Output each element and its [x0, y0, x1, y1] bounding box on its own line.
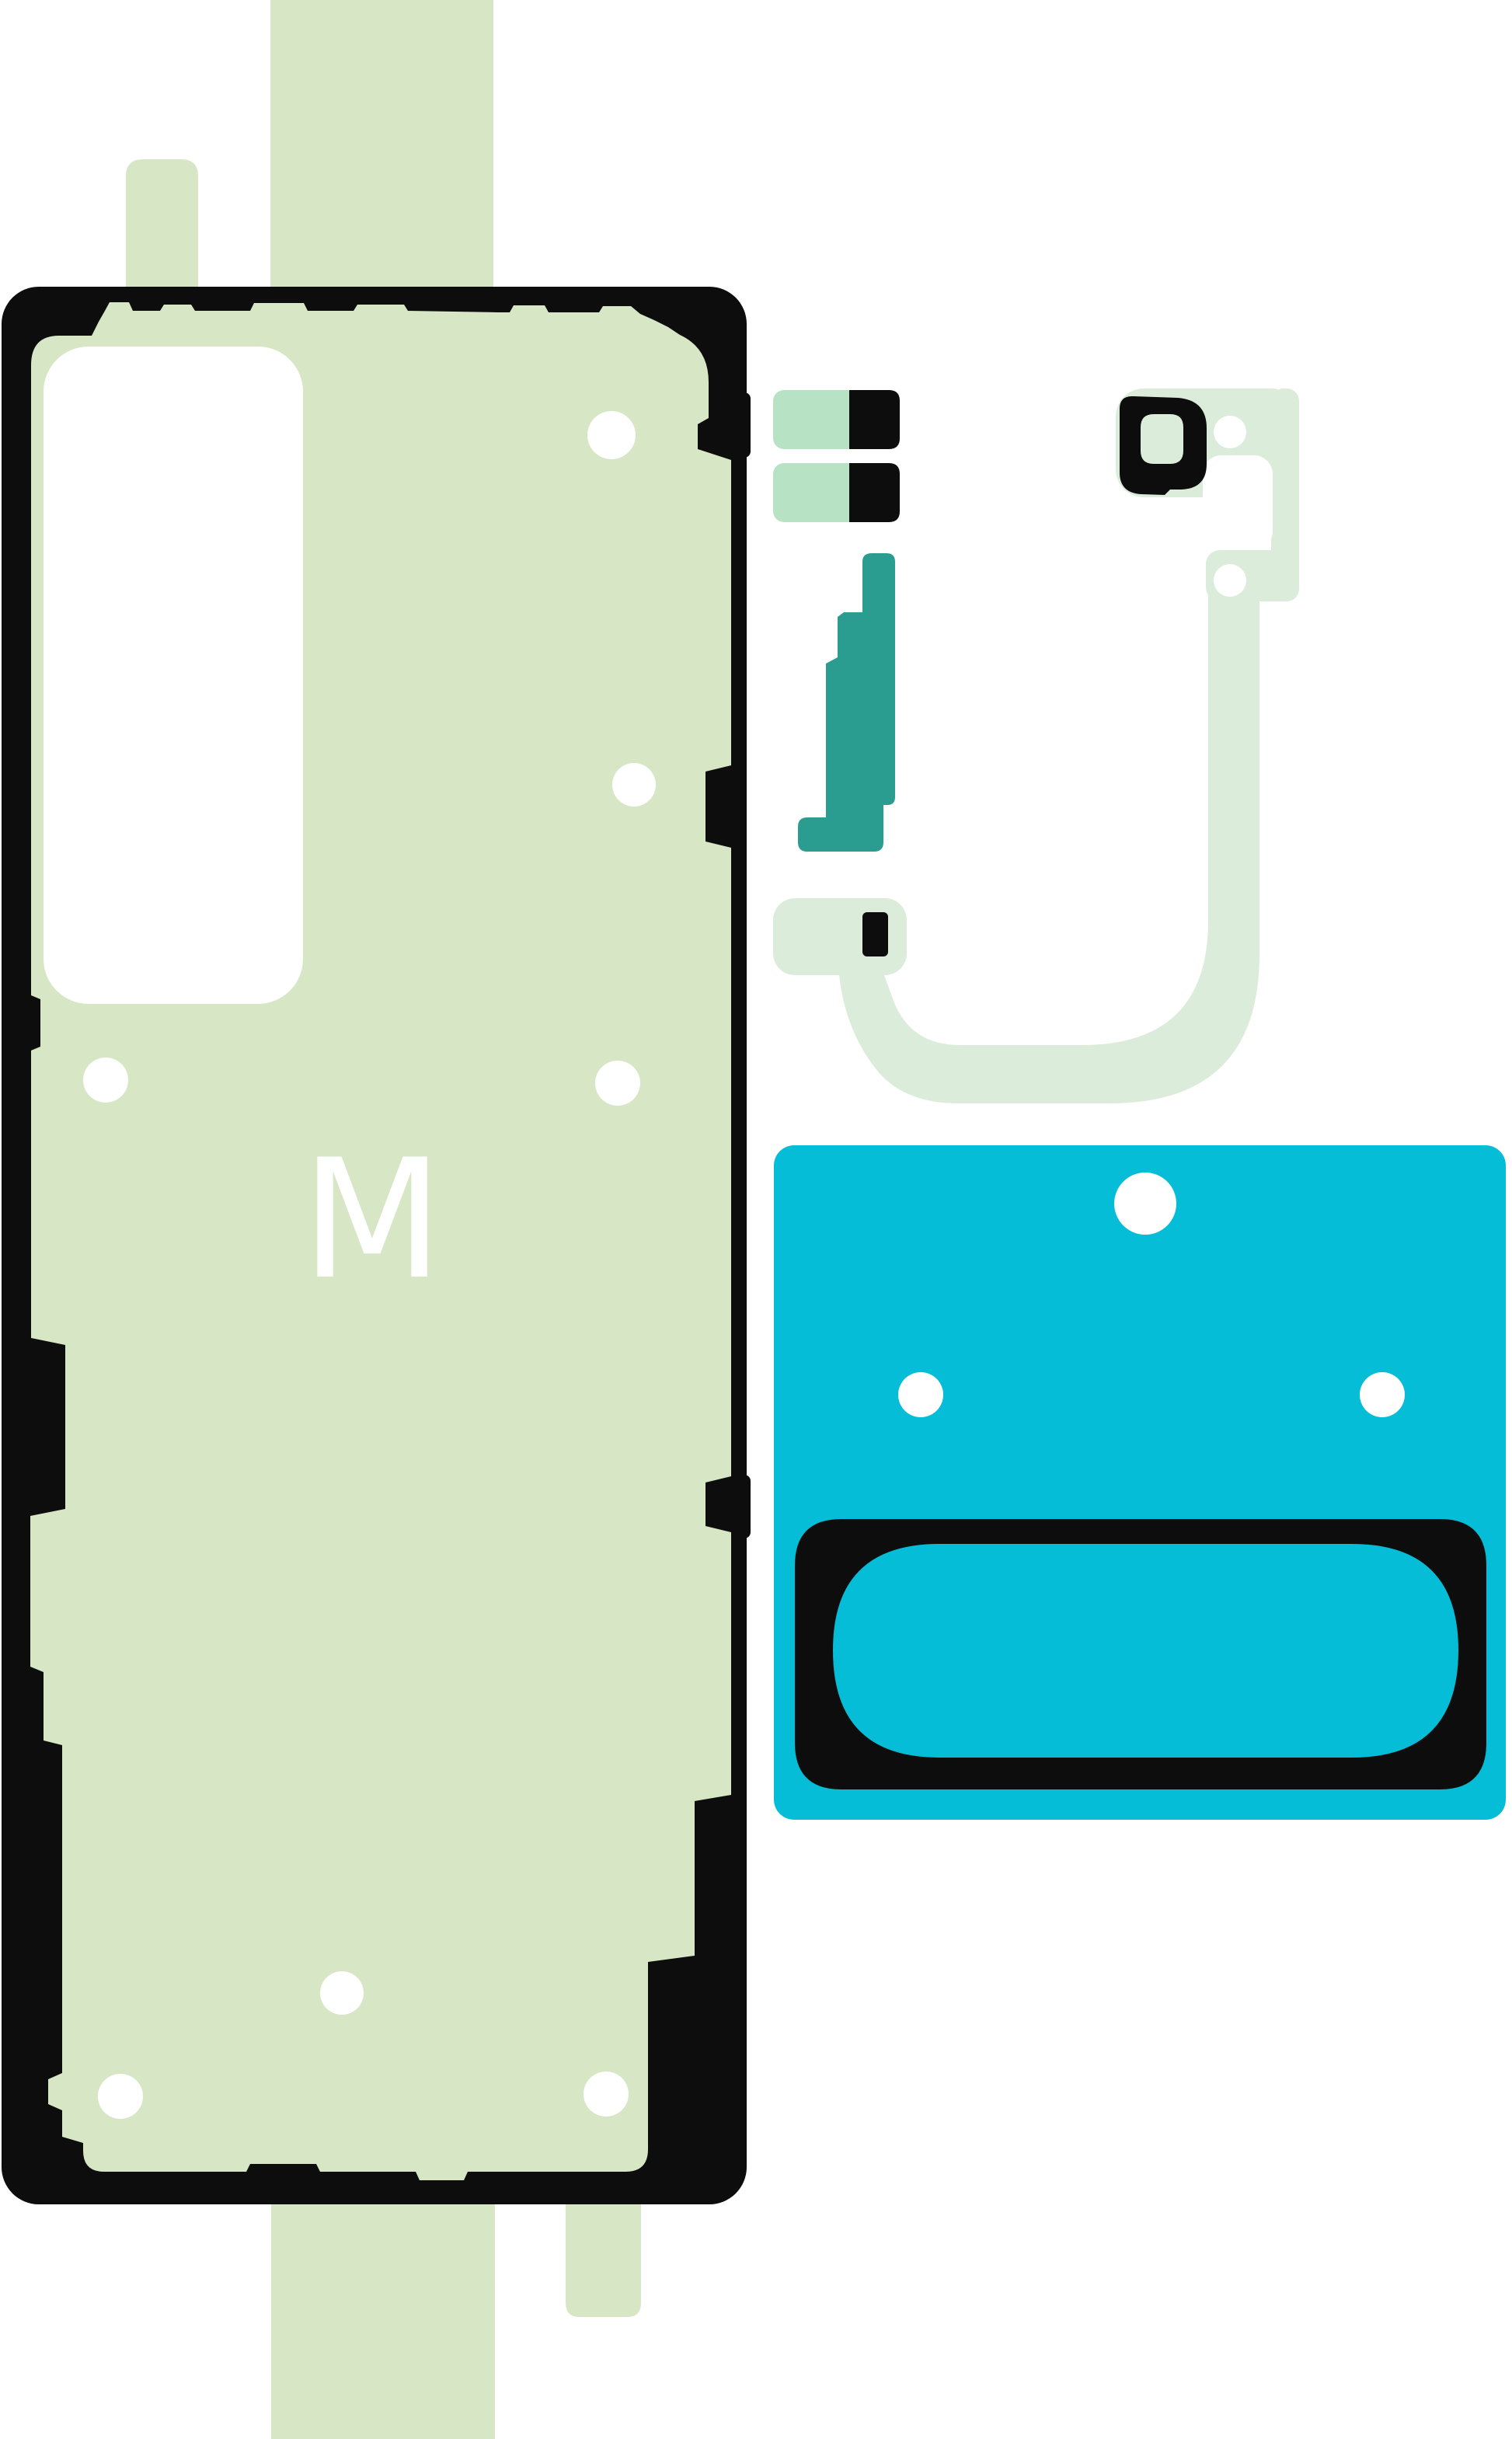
- camera-plate-adhesive: [774, 1145, 1506, 1820]
- alignment-hole: [98, 2074, 143, 2119]
- alignment-hole: [584, 2071, 629, 2117]
- liner-tab-bottom: [566, 2199, 641, 2317]
- sensor-strip-2-ink-end: [849, 463, 900, 522]
- sensor-strip-1-ink-end: [849, 390, 900, 449]
- camera-plate-face: [774, 1145, 1506, 1820]
- plate-hole-left: [898, 1372, 943, 1417]
- alignment-hole: [587, 411, 636, 459]
- side-key-adhesive: [798, 553, 895, 852]
- flex-hole-top: [1214, 416, 1246, 448]
- sensor-adhesive-strips: [773, 390, 900, 522]
- camera-cutout: [44, 347, 303, 1004]
- flex-tab-ink-pad: [862, 912, 888, 956]
- liner-tab-top-left: [126, 159, 198, 295]
- alignment-hole: [83, 1057, 128, 1103]
- back-cover-adhesive: M: [2, 287, 751, 2204]
- liner-strip-bottom: [271, 2199, 495, 2439]
- liner-strip-top: [270, 0, 493, 295]
- flex-hole-bottom: [1214, 564, 1246, 597]
- flex-notch-cutout: [1203, 455, 1273, 550]
- back-cover-edge-bump-top: [737, 392, 751, 458]
- adhesive-kit-art: M: [0, 0, 1512, 2439]
- back-cover-edge-bump-bottom: [737, 1475, 751, 1538]
- adhesive-kit-illustration: M: [0, 0, 1512, 2439]
- size-marking-label: M: [301, 1124, 444, 1315]
- alignment-hole: [595, 1061, 640, 1106]
- alignment-hole: [612, 763, 656, 807]
- flex-stem: [1208, 591, 1259, 932]
- plate-hole-top: [1114, 1172, 1176, 1235]
- plate-hole-right: [1360, 1372, 1405, 1417]
- alignment-hole: [320, 1971, 364, 2015]
